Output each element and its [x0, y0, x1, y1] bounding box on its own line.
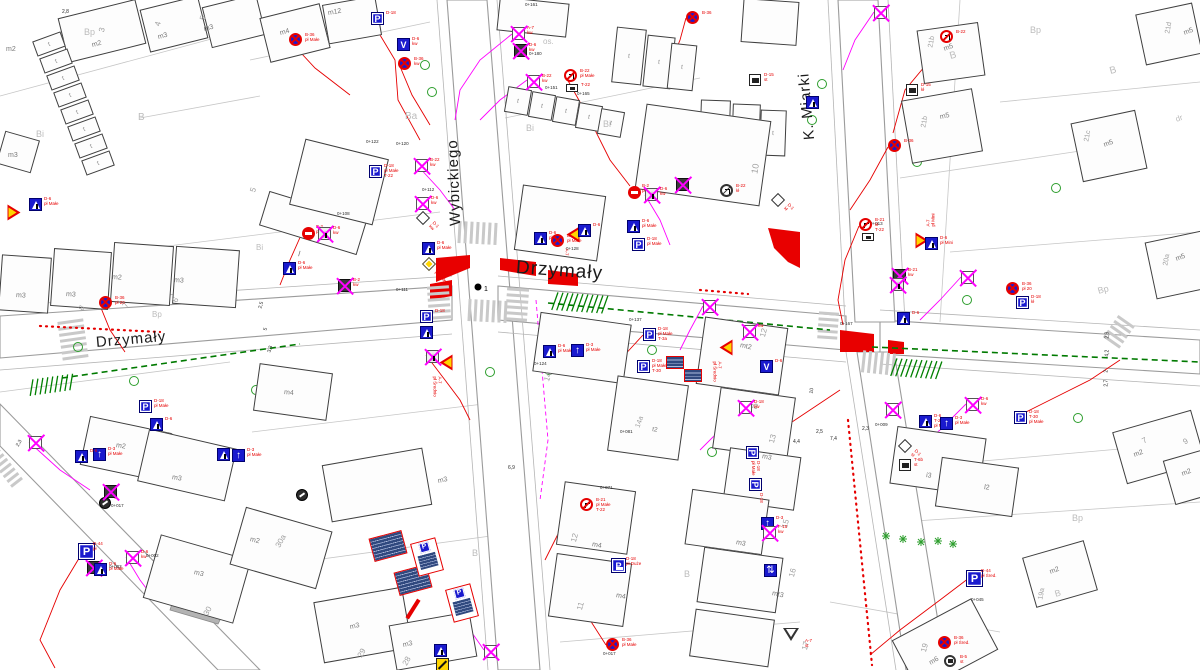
magenta-connector — [536, 300, 548, 500]
curb-extension-red — [840, 330, 874, 352]
tree — [648, 346, 657, 355]
tree — [808, 116, 817, 125]
tree-star — [917, 538, 925, 546]
magenta-connector — [700, 407, 739, 450]
road — [447, 0, 540, 670]
red-connector — [289, 40, 350, 95]
magenta-connector — [458, 610, 484, 650]
tree-star — [899, 535, 907, 543]
red-dotted-line — [848, 420, 872, 665]
magenta-connector — [417, 165, 455, 210]
parcel-line — [940, 0, 960, 322]
red-connector — [545, 505, 580, 560]
parcel-line — [1000, 82, 1200, 102]
red-connector — [560, 580, 606, 645]
red-connector — [566, 77, 630, 186]
parcel-line — [900, 502, 1200, 522]
tree — [252, 386, 261, 395]
parcel-line — [0, 362, 230, 392]
parcel-line — [300, 532, 520, 562]
tree-star — [934, 537, 942, 545]
map-linework-layer: 1 — [0, 0, 1200, 670]
road — [498, 286, 846, 350]
road — [880, 320, 1200, 374]
tree — [1052, 184, 1061, 193]
parcel-line — [880, 442, 1200, 470]
traffic-plan-map: 1 ttttttttttttttttttt WybickiegoDrzymały… — [0, 0, 1200, 670]
parcel-line — [900, 148, 1100, 178]
tree — [818, 80, 827, 89]
curb-extension-red — [548, 270, 578, 286]
red-connector — [1014, 360, 1120, 418]
red-connector — [748, 390, 840, 453]
tree-star — [882, 532, 890, 540]
tree — [428, 88, 437, 97]
red-connector — [672, 18, 686, 60]
parcel-line — [140, 96, 260, 118]
parcel-line — [560, 622, 800, 642]
tree — [130, 377, 139, 386]
tree-star — [949, 540, 957, 548]
tree — [708, 448, 717, 457]
reference-point — [475, 284, 482, 291]
red-connector — [399, 64, 430, 125]
red-connector — [40, 550, 84, 668]
parcel-line — [505, 78, 700, 118]
road — [857, 352, 946, 670]
red-connector — [371, 20, 420, 140]
curb-extension-red — [768, 228, 800, 268]
magenta-connector — [645, 195, 670, 245]
curb-extension-red — [888, 340, 904, 354]
tree — [1074, 414, 1083, 423]
parcel-line — [250, 22, 430, 60]
reference-point-label: 1 — [484, 286, 488, 293]
red-connector — [893, 38, 940, 133]
curb-extension-red — [436, 255, 470, 282]
tree — [903, 103, 912, 112]
parcel-line — [950, 232, 1200, 252]
magenta-connector — [915, 404, 966, 450]
red-dotted-line — [700, 290, 748, 294]
road — [0, 404, 260, 670]
road — [838, 0, 895, 322]
tree — [598, 332, 607, 341]
tree — [913, 158, 922, 167]
tree — [545, 366, 554, 375]
parcel-line — [120, 212, 440, 252]
tree — [421, 61, 430, 70]
parcel-line — [0, 38, 215, 96]
tree — [963, 296, 972, 305]
red-connector — [280, 233, 302, 285]
